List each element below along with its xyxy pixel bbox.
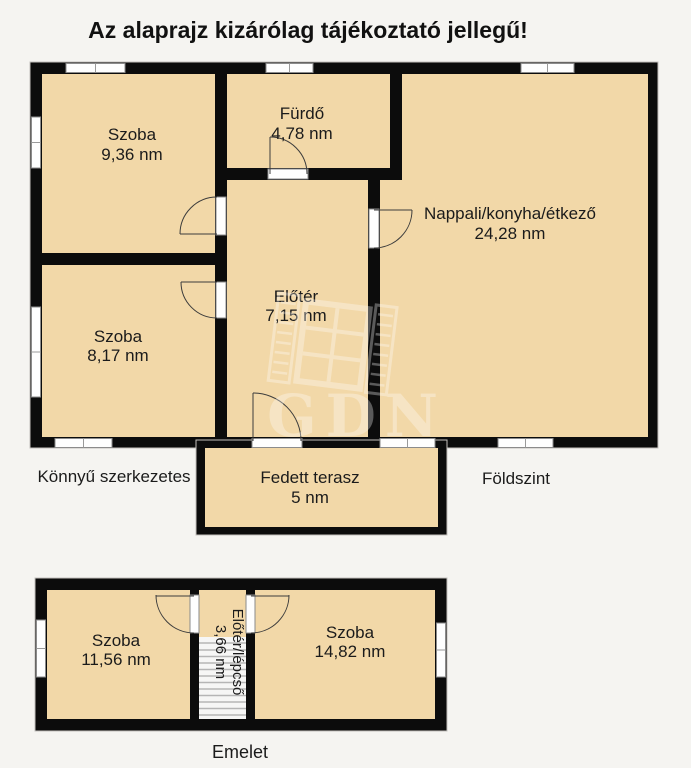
room-area: 5 nm — [291, 488, 329, 507]
floorplan-svg: Az alaprajz kizárólag tájékoztató jelleg… — [0, 0, 691, 768]
room-area: 3,66 nm — [212, 625, 229, 679]
room-area: 24,28 nm — [475, 224, 546, 243]
construction-note: Könnyű szerkezetes — [37, 467, 190, 486]
upper-floor-plan: Szoba 11,56 nm Szoba 14,82 nm Előtér/lép… — [35, 578, 447, 762]
room-name: Szoba — [108, 125, 157, 144]
room-area: 11,56 nm — [81, 650, 151, 669]
room-name: Fedett terasz — [260, 468, 359, 487]
room-area: 8,17 nm — [87, 346, 148, 365]
disclaimer-title: Az alaprajz kizárólag tájékoztató jelleg… — [88, 17, 528, 43]
ground-floor-plan: Szoba 9,36 nm Fürdő 4,78 nm Nappali/kony… — [30, 62, 658, 535]
door-leaf — [216, 282, 226, 318]
door-leaf — [246, 595, 255, 633]
room-area: 9,36 nm — [101, 145, 162, 164]
room-area: 4,78 nm — [271, 124, 332, 143]
ground-floor-label: Földszint — [482, 469, 550, 488]
room-name: Szoba — [326, 623, 375, 642]
door-leaf — [369, 209, 379, 248]
room-name: Előtér/lépcső — [229, 609, 246, 696]
room-name: Nappali/konyha/étkező — [424, 204, 596, 223]
room-area: 14,82 nm — [315, 642, 386, 661]
watermark-text: GDN — [267, 382, 447, 450]
door-leaf — [216, 197, 226, 235]
room-name: Szoba — [94, 327, 143, 346]
door-leaf — [190, 595, 199, 633]
room-name: Szoba — [92, 631, 141, 650]
door-leaf — [268, 169, 308, 179]
upper-floor-label: Emelet — [212, 742, 268, 762]
floorplan-image: Az alaprajz kizárólag tájékoztató jelleg… — [0, 0, 691, 768]
room-name: Fürdő — [280, 104, 324, 123]
